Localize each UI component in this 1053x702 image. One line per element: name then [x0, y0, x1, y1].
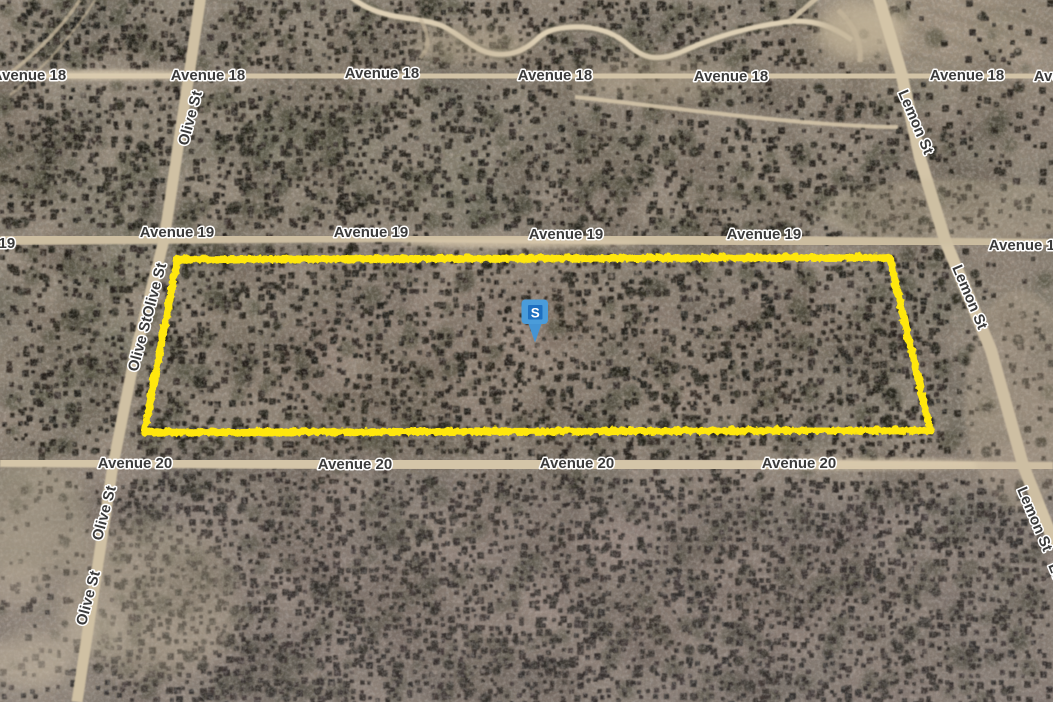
svg-text:Avenue 19: Avenue 19 — [727, 226, 801, 243]
svg-text:Avenue 19: Avenue 19 — [0, 235, 15, 252]
svg-text:Avenue 19: Avenue 19 — [140, 224, 214, 241]
svg-text:Avenue 20: Avenue 20 — [762, 455, 836, 472]
svg-text:Avenue 20: Avenue 20 — [540, 455, 614, 472]
svg-text:Avenue 19: Avenue 19 — [989, 237, 1053, 254]
svg-text:Avenue 18: Avenue 18 — [345, 65, 419, 82]
svg-text:Avenue 18: Avenue 18 — [694, 68, 768, 85]
svg-text:Avenue 18: Avenue 18 — [930, 67, 1004, 84]
svg-text:Avenue 18: Avenue 18 — [518, 67, 592, 84]
svg-text:Avenue 18: Avenue 18 — [171, 67, 245, 84]
svg-text:S: S — [531, 306, 540, 321]
svg-text:Avenue 20: Avenue 20 — [318, 456, 392, 473]
svg-text:Avenue 19: Avenue 19 — [529, 226, 603, 243]
svg-text:Avenue 18: Avenue 18 — [1034, 68, 1053, 85]
svg-text:Avenue 18: Avenue 18 — [0, 67, 66, 84]
svg-text:Avenue 20: Avenue 20 — [98, 455, 172, 472]
svg-text:Avenue 19: Avenue 19 — [334, 224, 408, 241]
